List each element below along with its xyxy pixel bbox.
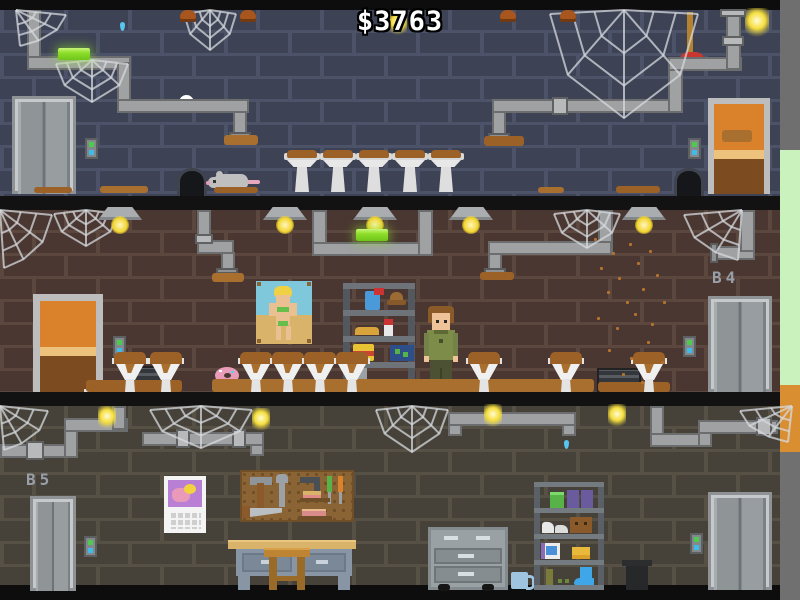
call-button-down-light: [692, 150, 697, 155]
brick-joint: [480, 33, 484, 53]
shelf-board: [534, 482, 604, 487]
brick-joint: [704, 10, 708, 30]
elevator-call-button-b5-right[interactable]: [690, 533, 703, 554]
sponge-pile: [355, 327, 379, 335]
brick-joint: [192, 56, 196, 76]
brick-joint: [544, 429, 548, 449]
sink-pedestal: [439, 167, 453, 192]
rat-nose: [206, 181, 210, 185]
sink-dirt: [431, 150, 461, 158]
donut-hole: [224, 373, 231, 378]
character-hand: [424, 356, 429, 362]
fly: [618, 277, 621, 280]
brick-joint: [416, 475, 420, 495]
pipe-segment: [448, 412, 576, 426]
brick-joint: [192, 256, 196, 276]
brick-joint: [768, 56, 772, 76]
brick-joint: [256, 10, 260, 30]
screwdriver-green: [327, 476, 332, 492]
pipe-segment: [312, 242, 433, 256]
dirt-patch: [616, 186, 660, 193]
urinal-dirt: [114, 352, 146, 364]
wooden-door-b3[interactable]: [708, 98, 770, 194]
purple-box: [567, 490, 579, 508]
cabinet-top-slot: [444, 536, 458, 540]
dirt-patch: [34, 187, 72, 193]
brick-joint: [640, 194, 644, 196]
pipe-joint: [722, 36, 744, 46]
call-button-down-light: [89, 150, 94, 155]
blue-boot-foot: [574, 578, 594, 585]
character-torso: [427, 330, 455, 360]
brick-joint: [64, 194, 68, 196]
brick-joint: [640, 148, 644, 168]
brick-joint: [512, 56, 516, 76]
brick-joint: [640, 498, 644, 518]
stool-crossbar: [269, 576, 305, 581]
character-collar: [434, 330, 448, 334]
elevator-b3: [12, 96, 76, 194]
brick-joint: [512, 148, 516, 168]
brick-joint: [640, 406, 644, 426]
dirty-toilet-sink: [428, 150, 464, 192]
dirty-toilet-sink: [320, 150, 356, 192]
brick-joint: [352, 521, 356, 541]
hammer-handle: [257, 483, 264, 509]
elevator-doors-b4[interactable]: [714, 302, 766, 392]
brick-joint: [320, 302, 324, 322]
brick-joint: [96, 567, 100, 585]
brick-joint: [352, 429, 356, 449]
elevator-call-button-b3-left[interactable]: [85, 138, 98, 159]
right-edge-grey-bottom: [780, 452, 800, 600]
door-panel-band: [40, 347, 96, 356]
urinal-stem: [315, 379, 325, 392]
brick-joint: [576, 194, 580, 196]
brick-joint: [384, 256, 388, 276]
sink-dirt: [359, 150, 389, 158]
fly: [616, 327, 619, 330]
shelf-board: [534, 534, 604, 539]
calendar-grid: [169, 511, 201, 529]
sink-dirt: [395, 150, 425, 158]
brick-joint: [160, 125, 164, 145]
brick-joint: [320, 256, 324, 276]
brick-joint: [384, 102, 388, 122]
urinal-stem: [161, 379, 171, 392]
sink-bowl: [431, 160, 461, 167]
brick-joint: [608, 521, 612, 541]
brick-joint: [608, 125, 612, 145]
brick-joint: [416, 125, 420, 145]
brick-joint: [192, 302, 196, 322]
brick-joint: [384, 544, 388, 564]
fly: [594, 238, 597, 241]
floor-band-2: [0, 392, 780, 406]
brick-joint: [288, 79, 292, 99]
ceiling-mount: [500, 10, 516, 22]
brick-joint: [96, 33, 100, 53]
call-button-up-light: [89, 142, 94, 147]
brick-joint: [608, 279, 612, 299]
brick-joint: [416, 567, 420, 585]
brick-joint: [608, 171, 612, 191]
urinal-dirt: [468, 352, 500, 364]
fly: [634, 313, 637, 316]
tube-light-green: [356, 229, 388, 241]
brick-joint: [416, 79, 420, 99]
elevator-doors-b5-right[interactable]: [714, 498, 766, 590]
cabinet-wheel: [438, 584, 450, 591]
character-hair-side: [450, 313, 454, 323]
pinup-poster: [256, 281, 312, 344]
tube-light-green: [58, 48, 90, 60]
poster-figure-leg: [286, 326, 291, 340]
brick-joint: [576, 452, 580, 472]
call-button-down-light: [88, 548, 93, 553]
pipe-segment: [448, 424, 462, 436]
game-viewport: B4: [0, 0, 800, 600]
character-face: [432, 313, 450, 330]
character-hand: [453, 356, 458, 362]
brick-joint: [256, 256, 260, 276]
brick-joint: [288, 521, 292, 541]
door-panel-lower: [714, 159, 764, 194]
right-edge-green: [780, 150, 800, 385]
dirty-urinal: [270, 352, 306, 392]
fly: [629, 243, 632, 246]
saw-handle: [242, 506, 251, 518]
brick-joint: [672, 567, 676, 585]
firefly-glow: [484, 404, 502, 428]
blue-box: [390, 345, 414, 361]
blue-box-dots: [395, 349, 400, 354]
brick-joint: [64, 256, 68, 276]
brick-joint: [384, 56, 388, 76]
brick-joint: [192, 544, 196, 564]
brick-joint: [672, 371, 676, 391]
fly: [647, 341, 650, 344]
ceiling-mount: [240, 10, 256, 22]
call-button-down-light: [687, 348, 692, 353]
door-panel-band: [714, 150, 764, 159]
character-arm: [453, 333, 458, 356]
pipe-segment: [250, 444, 264, 456]
dirt-patch: [484, 136, 524, 146]
brick-joint: [576, 406, 580, 426]
brick-joint: [256, 194, 260, 196]
brick-joint: [576, 302, 580, 322]
brick-joint: [256, 210, 260, 230]
brick-joint: [224, 79, 228, 99]
dirt-patch: [214, 187, 258, 193]
wall-calendar: [164, 476, 206, 533]
brick-joint: [704, 452, 708, 472]
brick-joint: [0, 194, 4, 196]
brick-joint: [0, 544, 4, 564]
brick-joint: [288, 33, 292, 53]
brick-joint: [480, 475, 484, 495]
brick-joint: [608, 475, 612, 495]
elevator-doors-b5-left[interactable]: [36, 502, 70, 591]
brick-joint: [192, 452, 196, 472]
sink-dirt: [323, 150, 353, 158]
brick-joint: [224, 475, 228, 495]
brick-joint: [672, 125, 676, 145]
poster-bikini-top: [277, 307, 289, 312]
urinal-stem: [251, 379, 261, 392]
hat-brim: [387, 300, 406, 305]
fly: [612, 252, 615, 255]
brick-joint: [288, 125, 292, 145]
brick-joint: [512, 498, 516, 518]
elevator-call-button-b4-right[interactable]: [683, 336, 696, 357]
call-button-up-light: [88, 540, 93, 545]
brick-joint: [320, 102, 324, 122]
saw-blade: [250, 508, 282, 517]
ceiling-mount: [180, 10, 196, 22]
spiderweb: [150, 406, 252, 448]
stool: [264, 548, 310, 590]
brick-joint: [512, 452, 516, 472]
firefly-glow: [252, 408, 270, 432]
brick-joint: [160, 325, 164, 345]
sink-bowl: [359, 160, 389, 167]
brick-joint: [96, 429, 100, 449]
urinal-stem: [644, 379, 654, 392]
brick-joint: [448, 56, 452, 76]
dirt-patch: [212, 273, 244, 282]
firefly-glow: [98, 406, 116, 430]
brick-joint: [160, 171, 164, 191]
white-shoes: [555, 525, 568, 533]
screwdriver-orange: [338, 476, 343, 492]
brick-joint: [352, 79, 356, 99]
dirty-toilet-sink: [392, 150, 428, 192]
brick-joint: [448, 452, 452, 472]
brick-joint: [320, 194, 324, 196]
call-button-down-light: [694, 545, 699, 550]
brick-joint: [128, 302, 132, 322]
elevator-b4: [708, 296, 772, 392]
brick-joint: [640, 452, 644, 472]
dirt-patch: [100, 186, 148, 193]
urinal-dirt: [150, 352, 182, 364]
dirty-urinal: [148, 352, 184, 392]
stool-leg: [297, 557, 305, 590]
brick-joint: [96, 475, 100, 495]
dirty-urinal: [548, 352, 584, 392]
donut-sprinkle: [219, 370, 222, 372]
elevator-b5-right: [708, 492, 772, 590]
drawer-handle: [316, 560, 328, 564]
drawer-handle: [458, 554, 474, 558]
brick-joint: [288, 233, 292, 253]
screwdriver-shaft: [339, 492, 342, 504]
brick-joint: [320, 10, 324, 30]
call-button-up-light: [692, 142, 697, 147]
small-items: [558, 579, 562, 583]
brick-joint: [128, 544, 132, 564]
light-bulb: [745, 8, 769, 38]
brick-joint: [512, 302, 516, 322]
ceiling-lamp-bulb: [635, 216, 653, 234]
brick-joint: [352, 33, 356, 53]
brick-joint: [512, 348, 516, 368]
brick-joint: [736, 79, 740, 99]
brick-joint: [0, 498, 4, 518]
brick-joint: [160, 33, 164, 53]
brick-joint: [480, 79, 484, 99]
brick-joint: [128, 452, 132, 472]
brick-joint: [448, 102, 452, 122]
urinal-dirt: [240, 352, 272, 364]
brick-joint: [416, 521, 420, 541]
brick-joint: [128, 194, 132, 196]
box-face-dots: [575, 522, 578, 525]
brick-joint: [576, 148, 580, 168]
elevator-call-button-b5-left[interactable]: [84, 536, 97, 557]
dirty-toilet-sink: [284, 150, 320, 192]
character-hair-side: [428, 313, 432, 323]
fly: [637, 262, 640, 265]
brick-joint: [288, 429, 292, 449]
sandwich: [303, 491, 321, 498]
framed-picture: [541, 543, 560, 559]
brick-joint: [0, 348, 4, 368]
spiderweb: [376, 406, 448, 452]
brick-joint: [448, 498, 452, 518]
spiderweb: [0, 210, 52, 268]
spiderweb: [56, 60, 128, 102]
ceiling-lamp-bulb: [462, 216, 480, 234]
brick-joint: [544, 279, 548, 299]
urinal-stem: [347, 379, 357, 392]
brick-joint: [608, 325, 612, 345]
character-arm: [424, 333, 429, 356]
brick-joint: [480, 429, 484, 449]
dirty-urinal: [466, 352, 502, 392]
brick-joint: [672, 521, 676, 541]
brick-joint: [224, 325, 228, 345]
brick-joint: [448, 210, 452, 230]
pipe-joint: [720, 9, 746, 17]
brick-joint: [192, 210, 196, 230]
brick-joint: [480, 233, 484, 253]
brick-joint: [192, 348, 196, 368]
brick-joint: [640, 302, 644, 322]
fly: [663, 301, 666, 304]
pipe-segment: [562, 424, 576, 436]
brick-joint: [160, 279, 164, 299]
brick-joint: [256, 56, 260, 76]
cabinet-wheel: [482, 584, 494, 591]
ceiling-mount: [560, 10, 576, 22]
fly: [608, 349, 611, 352]
trash-bin: [626, 566, 648, 590]
pipe-joint: [195, 234, 213, 244]
brick-joint: [608, 429, 612, 449]
sink-dirt: [287, 150, 317, 158]
poster-corner-tack: [307, 339, 311, 343]
fly: [626, 301, 629, 304]
elevator-doors-b3[interactable]: [18, 102, 70, 194]
brick-joint: [544, 125, 548, 145]
storage-shelf: [534, 482, 604, 590]
brick-joint: [224, 279, 228, 299]
shelf-board: [534, 585, 604, 590]
olive-bottle: [546, 569, 553, 585]
brick-joint: [352, 125, 356, 145]
dirty-urinal: [302, 352, 338, 392]
spiderweb: [550, 10, 698, 118]
mini-shelf: [300, 498, 330, 502]
yellow-box: [572, 547, 590, 559]
rat-ear: [216, 171, 223, 178]
brick-joint: [416, 279, 420, 299]
call-button-up-light: [694, 537, 699, 542]
fly: [642, 288, 645, 291]
door-button-b3-right[interactable]: [688, 138, 701, 159]
fly: [641, 381, 644, 384]
cabinet-top-slot: [476, 536, 490, 540]
shelf-board: [343, 310, 415, 316]
brick-joint: [576, 256, 580, 276]
wooden-door-b4[interactable]: [33, 294, 103, 392]
dirty-urinal: [112, 352, 148, 392]
brick-joint: [256, 148, 260, 168]
fly: [651, 323, 654, 326]
brick-joint: [608, 567, 612, 585]
pipe-segment: [117, 99, 249, 113]
sink-bowl: [287, 160, 317, 167]
poster-corner-tack: [307, 282, 311, 286]
brown-box: [570, 517, 592, 533]
urinal-dirt: [304, 352, 336, 364]
brick-joint: [480, 171, 484, 191]
brick-joint: [768, 452, 772, 472]
fly: [661, 361, 664, 364]
brick-joint: [128, 498, 132, 518]
floor-label-b5: B5: [26, 470, 53, 489]
green-box: [550, 492, 564, 508]
brick-joint: [448, 10, 452, 30]
white-shoes: [542, 522, 554, 533]
ceiling-lamp-bulb: [111, 216, 129, 234]
floor-band-bottom: [0, 585, 780, 600]
brick-joint: [320, 56, 324, 76]
brick-joint: [128, 406, 132, 426]
urinal-dirt: [272, 352, 304, 364]
dirty-urinal: [334, 352, 370, 392]
fly: [622, 373, 625, 376]
brick-joint: [192, 148, 196, 168]
workbench-leg: [238, 576, 250, 590]
brick-joint: [0, 302, 4, 322]
poster-corner-tack: [257, 282, 261, 286]
spiderweb: [740, 406, 792, 442]
rat-tail: [246, 180, 260, 184]
elevator-b5-left: [30, 496, 76, 591]
brick-joint: [416, 325, 420, 345]
tool-cabinet: [428, 527, 508, 590]
mini-shelf: [298, 516, 332, 520]
sink-bowl: [323, 160, 353, 167]
meat-slab: [302, 509, 326, 516]
brick-joint: [0, 56, 4, 76]
dirty-urinal: [631, 352, 667, 392]
brick-joint: [544, 79, 548, 99]
